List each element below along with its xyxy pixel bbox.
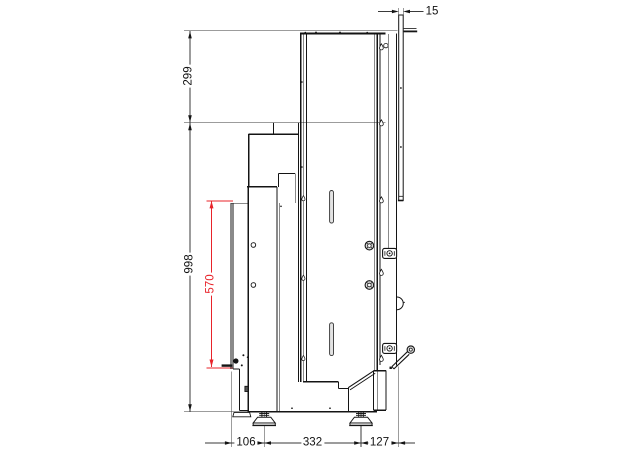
dim-label-106: 106	[234, 436, 257, 450]
hinge-tab	[222, 364, 233, 366]
dim-label-998: 998	[183, 252, 197, 275]
clamp-plate-icon	[383, 248, 397, 258]
keyhole-slots-right-rail	[379, 43, 388, 361]
leveling-foot-right	[349, 412, 373, 426]
pivot-dot	[390, 367, 392, 369]
hole-icon	[384, 43, 388, 47]
rear-panel	[398, 15, 417, 201]
dim-label-15: 15	[424, 5, 441, 19]
technical-drawing-canvas: 15 299 998 570 106 332 127	[0, 0, 624, 460]
middle-panel-holes	[245, 243, 256, 392]
screw-dots	[280, 31, 368, 409]
front-door-panel	[231, 203, 248, 410]
main-column	[273, 33, 396, 382]
door-hardware	[222, 354, 251, 417]
dim-label-299: 299	[182, 64, 196, 87]
dim-label-332: 332	[301, 436, 324, 450]
round-knob	[397, 297, 405, 310]
keyhole-icon	[302, 275, 305, 280]
vent-slot	[330, 323, 334, 356]
vent-slot	[330, 191, 334, 224]
step-panels	[247, 134, 299, 411]
base-assembly	[248, 371, 386, 412]
latch-mark	[245, 386, 248, 391]
star-knob-icon	[365, 241, 374, 250]
keyhole-icon	[302, 196, 305, 201]
clamp-plates	[383, 248, 397, 353]
leveling-foot-left	[252, 412, 276, 426]
main-column-slots	[330, 191, 334, 356]
clamp-plate-icon	[383, 343, 397, 353]
star-knobs	[365, 241, 374, 289]
front-glide-pad	[233, 412, 251, 416]
knob-bump-icon	[397, 297, 403, 310]
dim-label-127: 127	[368, 436, 391, 450]
pivot-dot	[233, 358, 238, 363]
drawing-geometry	[0, 0, 624, 460]
keyhole-icon	[302, 355, 305, 360]
star-knob-icon	[365, 281, 374, 290]
dim-label-570: 570	[204, 272, 218, 295]
